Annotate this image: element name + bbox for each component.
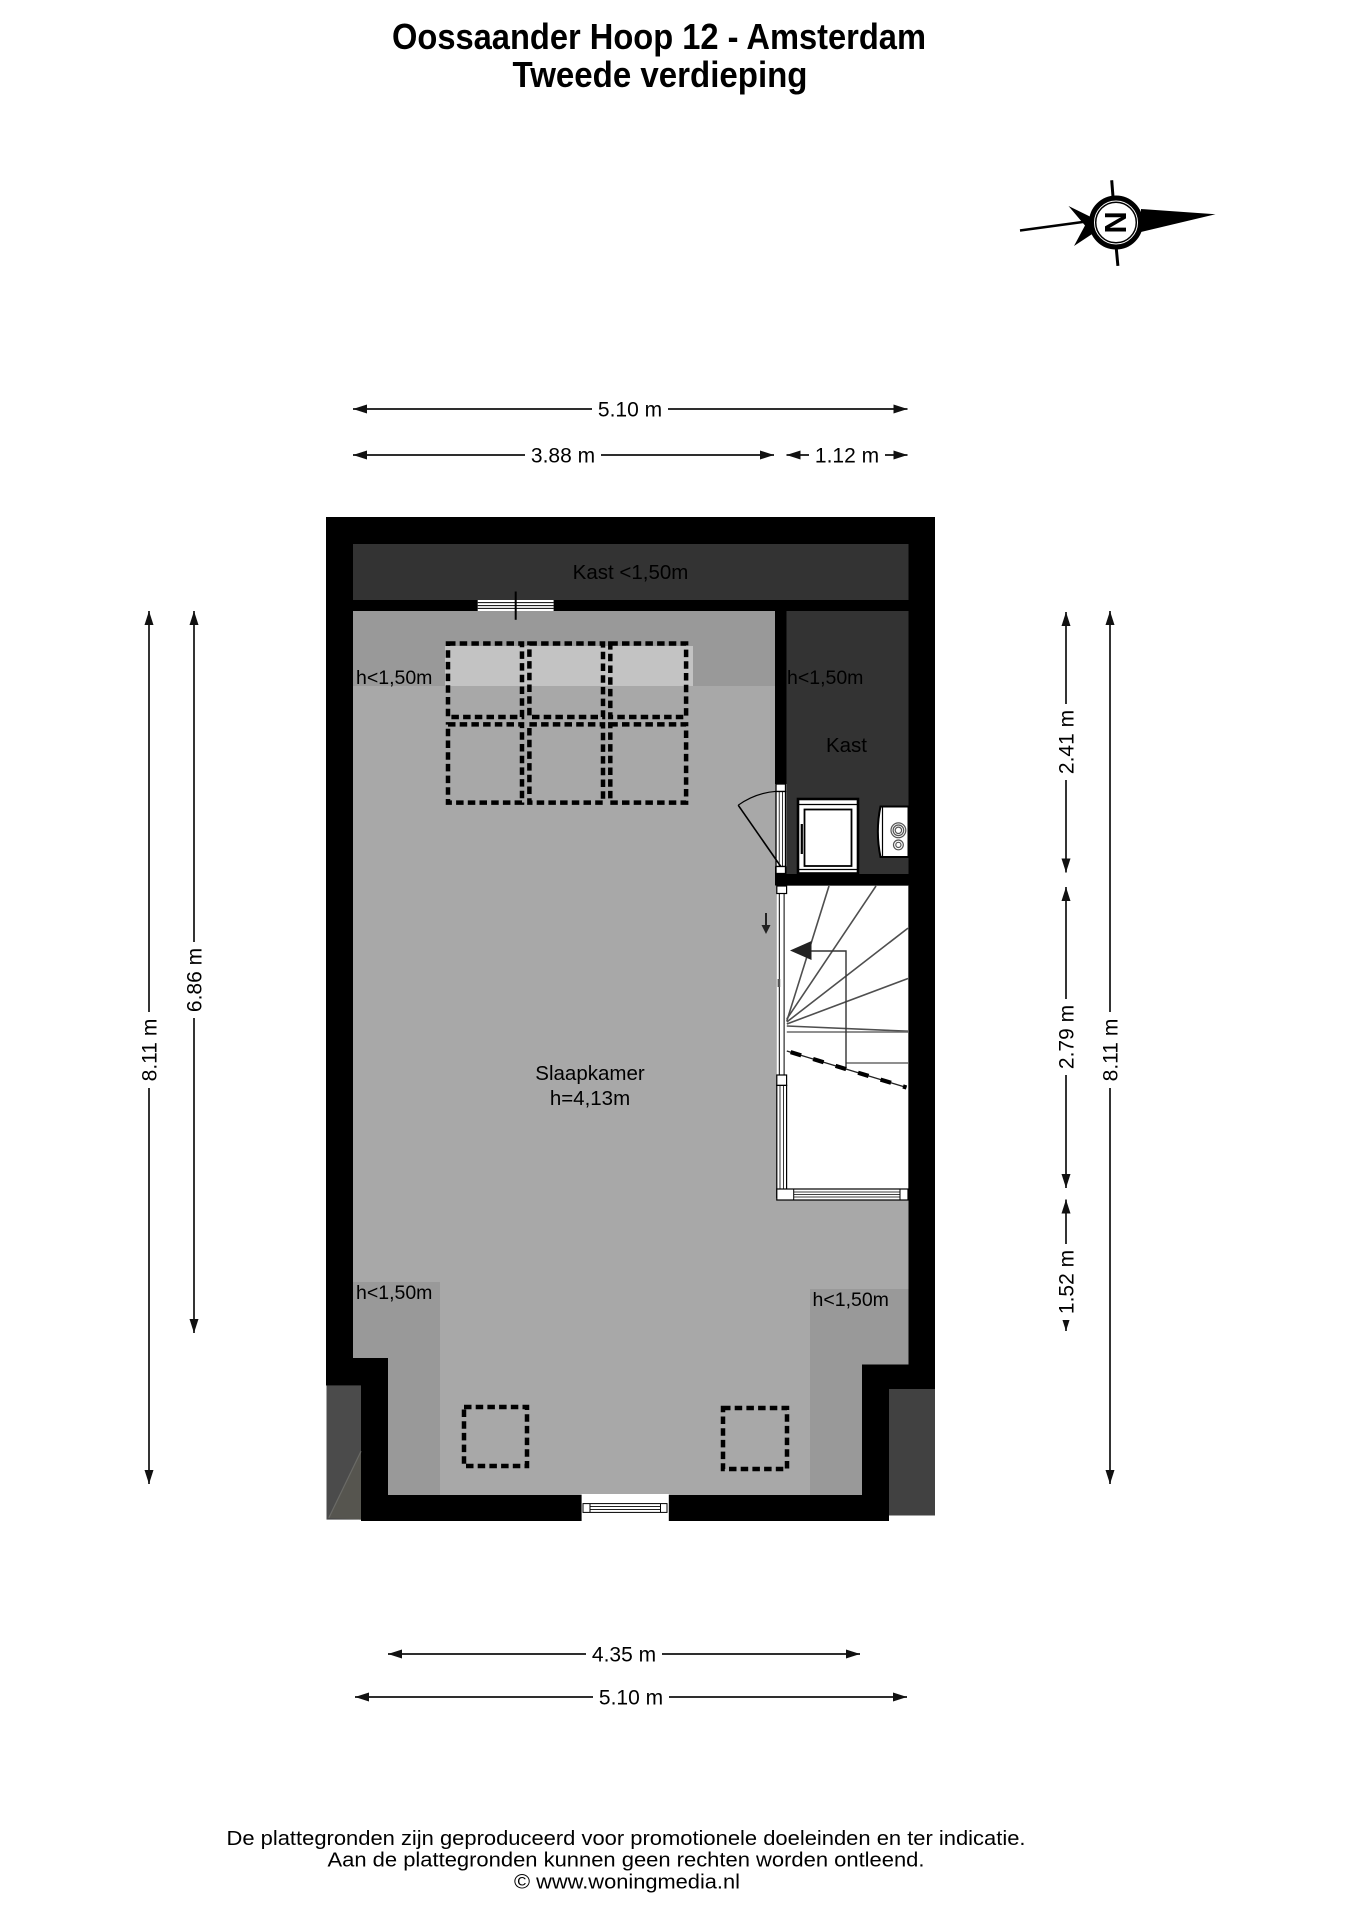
svg-text:6.86 m: 6.86 m (184, 948, 207, 1012)
svg-text:h<1,50m: h<1,50m (813, 1289, 889, 1311)
svg-text:8.11 m: 8.11 m (1100, 1019, 1123, 1082)
svg-text:Oossaander Hoop 12 - Amsterdam: Oossaander Hoop 12 - Amsterdam (392, 16, 926, 57)
svg-text:Aan de plattegronden kunnen ge: Aan de plattegronden kunnen geen rechten… (328, 1849, 925, 1872)
svg-text:Tweede verdieping: Tweede verdieping (513, 54, 808, 95)
svg-text:2.41 m: 2.41 m (1056, 710, 1079, 774)
svg-text:h=4,13m: h=4,13m (550, 1087, 630, 1110)
svg-text:5.10 m: 5.10 m (598, 399, 662, 422)
svg-text:h<1,50m: h<1,50m (356, 1282, 432, 1304)
svg-text:h<1,50m: h<1,50m (356, 667, 432, 689)
svg-text:© www.woningmedia.nl: © www.woningmedia.nl (514, 1871, 740, 1894)
svg-text:3.88 m: 3.88 m (531, 445, 595, 468)
svg-text:De plattegronden zijn geproduc: De plattegronden zijn geproduceerd voor … (227, 1827, 1026, 1850)
svg-text:h<1,50m: h<1,50m (787, 667, 863, 689)
svg-text:N: N (1098, 211, 1133, 233)
svg-text:2.79 m: 2.79 m (1056, 1005, 1079, 1069)
svg-text:8.11 m: 8.11 m (139, 1019, 162, 1082)
svg-text:4.35 m: 4.35 m (592, 1644, 656, 1667)
svg-text:5.10 m: 5.10 m (599, 1687, 663, 1710)
svg-text:Kast: Kast (826, 734, 867, 757)
svg-text:Kast <1,50m: Kast <1,50m (573, 561, 689, 584)
svg-text:1.52 m: 1.52 m (1056, 1250, 1079, 1314)
svg-text:1.12 m: 1.12 m (815, 445, 879, 468)
svg-text:Slaapkamer: Slaapkamer (535, 1062, 645, 1085)
